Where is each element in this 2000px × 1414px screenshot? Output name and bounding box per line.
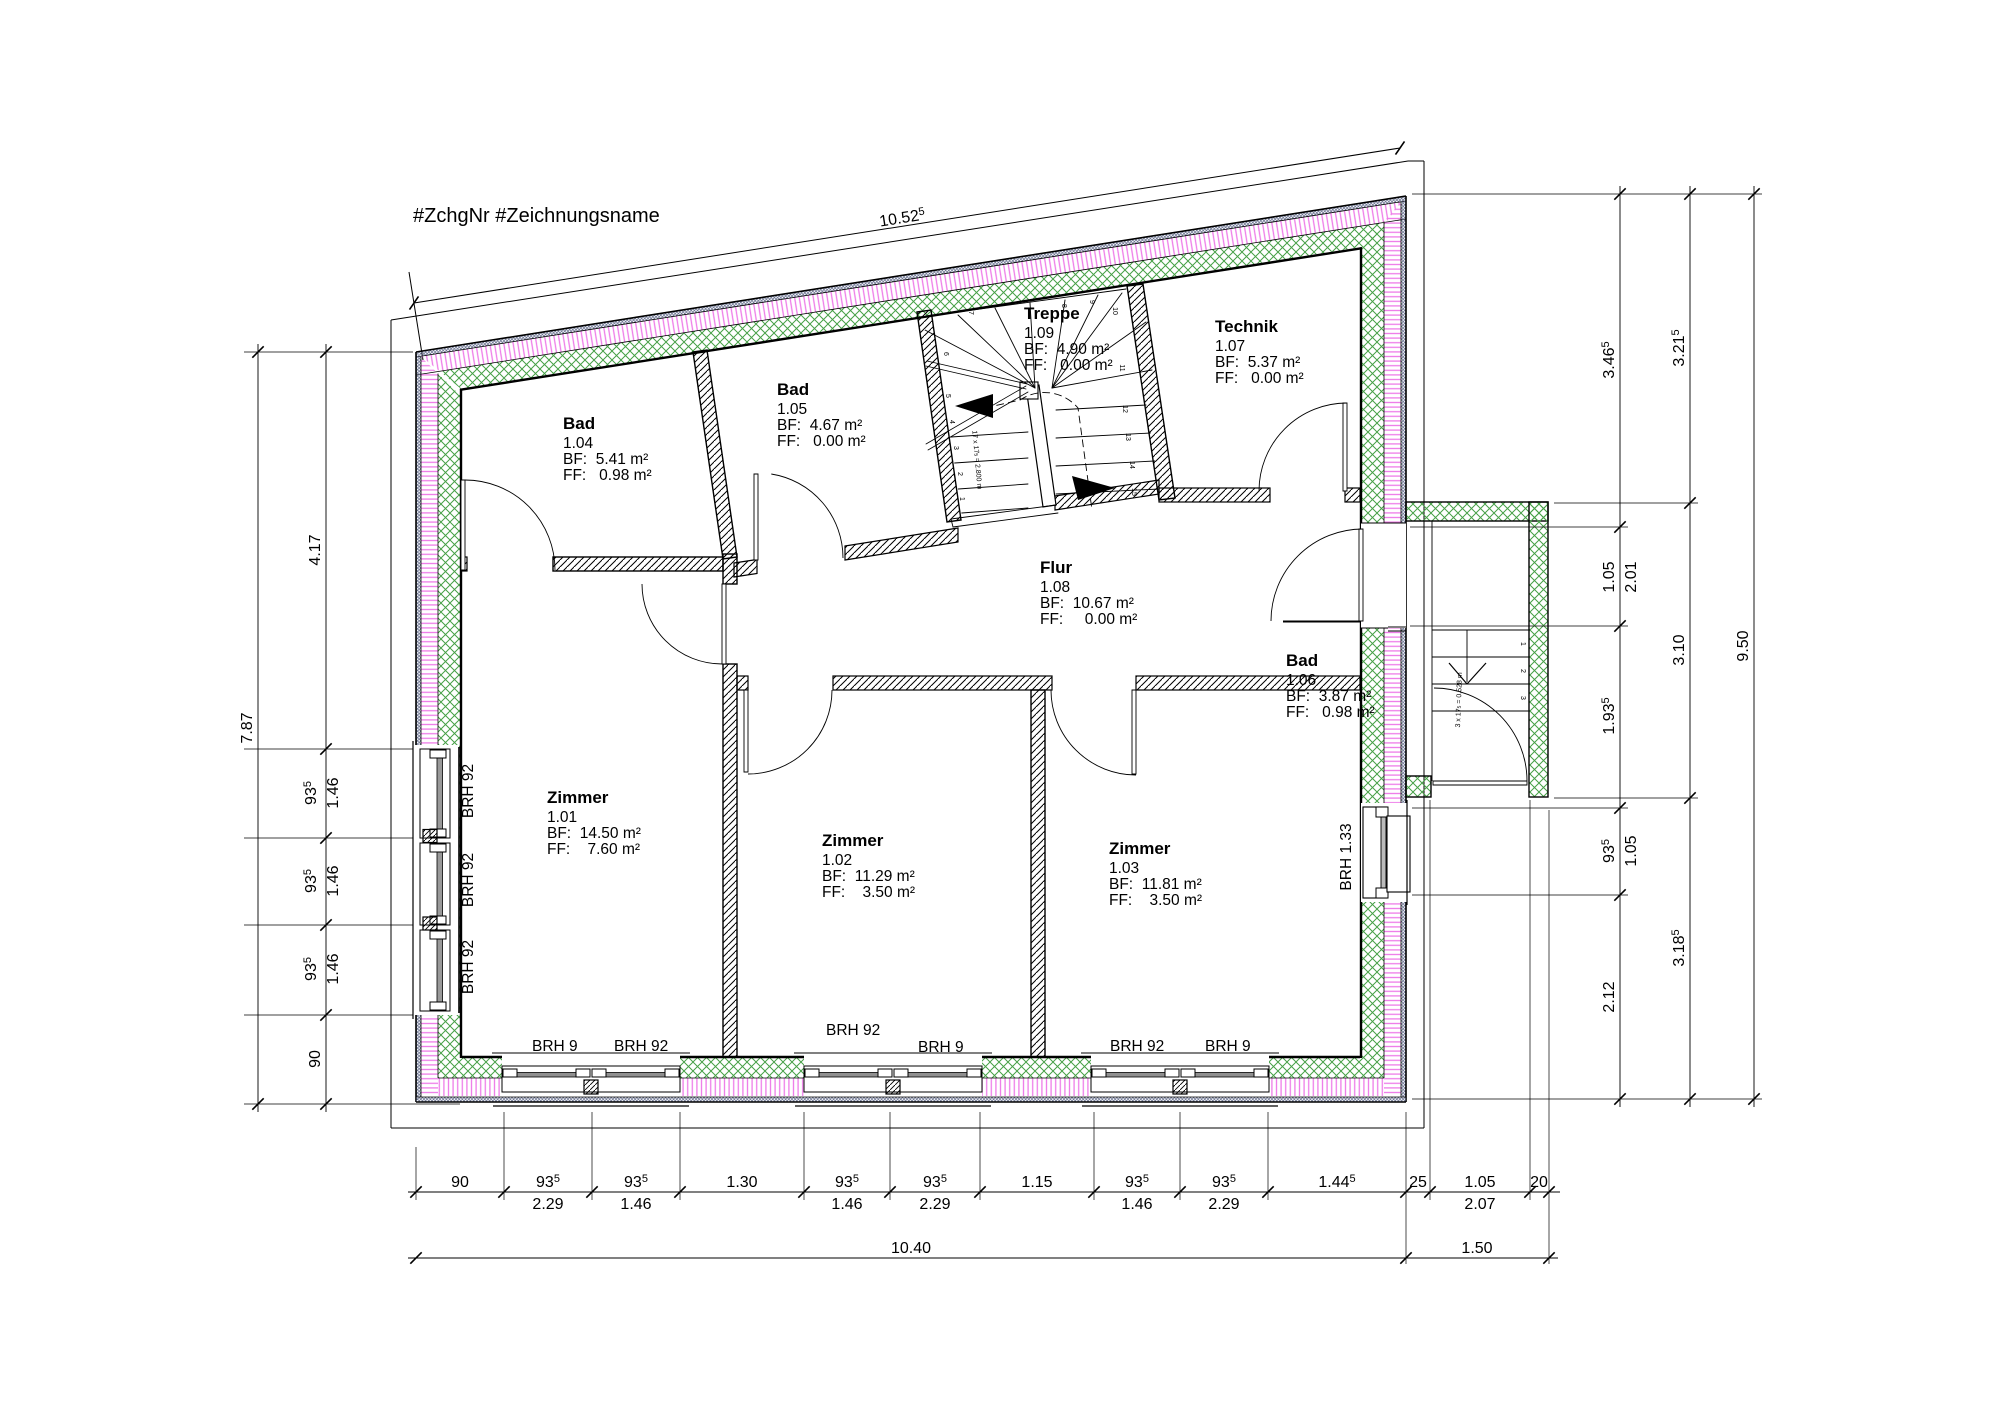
svg-text:FF: 0.98 m²: FF: 0.98 m² xyxy=(563,467,652,484)
svg-text:2.12: 2.12 xyxy=(1601,981,1618,1012)
svg-text:25: 25 xyxy=(1409,1174,1427,1191)
svg-text:BRH 1.33: BRH 1.33 xyxy=(1338,823,1355,890)
svg-text:15: 15 xyxy=(1130,488,1137,496)
svg-text:2: 2 xyxy=(956,472,963,476)
svg-text:2.01: 2.01 xyxy=(1623,561,1640,592)
svg-text:Technik: Technik xyxy=(1215,317,1279,336)
svg-text:12: 12 xyxy=(1121,405,1128,413)
svg-text:2.29: 2.29 xyxy=(1208,1196,1239,1213)
svg-text:6: 6 xyxy=(942,352,949,356)
svg-text:1.01: 1.01 xyxy=(547,809,577,826)
svg-text:BRH 92: BRH 92 xyxy=(826,1022,880,1039)
svg-text:3: 3 xyxy=(952,446,959,450)
svg-text:BF: 10.67 m²: BF: 10.67 m² xyxy=(1040,595,1134,612)
svg-text:FF: 3.50 m²: FF: 3.50 m² xyxy=(822,884,915,901)
svg-text:1.46: 1.46 xyxy=(831,1196,862,1213)
svg-text:BF: 5.37 m²: BF: 5.37 m² xyxy=(1215,354,1300,371)
svg-text:11: 11 xyxy=(1118,364,1125,371)
svg-text:7: 7 xyxy=(967,311,974,315)
svg-text:1: 1 xyxy=(958,497,965,501)
svg-text:1.46: 1.46 xyxy=(325,865,342,896)
svg-text:Zimmer: Zimmer xyxy=(1109,839,1171,858)
svg-text:1.46: 1.46 xyxy=(325,953,342,984)
svg-text:FF: 0.00 m²: FF: 0.00 m² xyxy=(1024,357,1113,374)
svg-text:90: 90 xyxy=(451,1174,469,1191)
svg-text:4.17: 4.17 xyxy=(307,534,324,565)
svg-text:BF: 3.87 m²: BF: 3.87 m² xyxy=(1286,688,1371,705)
svg-text:1.04: 1.04 xyxy=(563,435,594,452)
svg-text:Bad: Bad xyxy=(1286,651,1318,670)
svg-text:1.05: 1.05 xyxy=(1601,561,1618,592)
svg-text:9.50: 9.50 xyxy=(1735,630,1752,661)
svg-text:3: 3 xyxy=(1519,696,1526,700)
svg-text:BRH 92: BRH 92 xyxy=(460,853,477,907)
svg-text:1.46: 1.46 xyxy=(325,777,342,808)
svg-text:BF: 4.90 m²: BF: 4.90 m² xyxy=(1024,341,1109,358)
svg-text:BRH 92: BRH 92 xyxy=(460,940,477,994)
svg-text:Bad: Bad xyxy=(777,380,809,399)
svg-text:1: 1 xyxy=(1519,642,1526,646)
svg-text:FF: 3.50 m²: FF: 3.50 m² xyxy=(1109,892,1202,909)
svg-text:FF: 0.98 m²: FF: 0.98 m² xyxy=(1286,704,1375,721)
svg-text:BRH 9: BRH 9 xyxy=(918,1039,964,1056)
svg-text:1.50: 1.50 xyxy=(1461,1240,1492,1257)
svg-text:5: 5 xyxy=(944,394,951,398)
svg-text:Treppe: Treppe xyxy=(1024,304,1080,323)
svg-text:BRH 92: BRH 92 xyxy=(460,764,477,818)
svg-text:2: 2 xyxy=(1519,669,1526,673)
svg-text:1.03: 1.03 xyxy=(1109,860,1139,877)
svg-text:BF: 11.29 m²: BF: 11.29 m² xyxy=(822,868,915,885)
svg-text:10.40: 10.40 xyxy=(891,1240,931,1257)
svg-text:Zimmer: Zimmer xyxy=(822,831,884,850)
svg-text:7.87: 7.87 xyxy=(239,712,256,743)
svg-text:FF: 0.00 m²: FF: 0.00 m² xyxy=(1040,611,1137,628)
svg-text:20: 20 xyxy=(1530,1174,1548,1191)
svg-text:1.07: 1.07 xyxy=(1215,338,1245,355)
svg-text:BF: 5.41 m²: BF: 5.41 m² xyxy=(563,451,648,468)
svg-text:10: 10 xyxy=(1111,307,1118,315)
svg-text:1.06: 1.06 xyxy=(1286,672,1316,689)
svg-text:BRH 92: BRH 92 xyxy=(614,1038,668,1055)
svg-text:2.29: 2.29 xyxy=(919,1196,950,1213)
svg-text:1.05: 1.05 xyxy=(1623,835,1640,866)
svg-text:2.29: 2.29 xyxy=(532,1196,563,1213)
svg-text:FF: 7.60 m²: FF: 7.60 m² xyxy=(547,841,640,858)
svg-text:1.08: 1.08 xyxy=(1040,579,1070,596)
svg-text:1.46: 1.46 xyxy=(1121,1196,1152,1213)
svg-text:BRH 92: BRH 92 xyxy=(1110,1038,1164,1055)
svg-text:1.46: 1.46 xyxy=(620,1196,651,1213)
svg-text:1.09: 1.09 xyxy=(1024,325,1054,342)
svg-text:#ZchgNr #Zeichnungsname: #ZchgNr #Zeichnungsname xyxy=(413,205,660,227)
svg-text:BRH 9: BRH 9 xyxy=(1205,1038,1251,1055)
svg-text:Flur: Flur xyxy=(1040,558,1072,577)
svg-text:BF: 11.81 m²: BF: 11.81 m² xyxy=(1109,876,1202,893)
svg-text:14: 14 xyxy=(1128,461,1135,469)
svg-text:Bad: Bad xyxy=(563,414,595,433)
svg-text:FF: 0.00 m²: FF: 0.00 m² xyxy=(777,433,866,450)
svg-text:Zimmer: Zimmer xyxy=(547,788,609,807)
svg-text:FF: 0.00 m²: FF: 0.00 m² xyxy=(1215,370,1304,387)
svg-text:3.10: 3.10 xyxy=(1671,634,1688,665)
svg-text:9: 9 xyxy=(1088,300,1095,304)
svg-text:BF: 14.50 m²: BF: 14.50 m² xyxy=(547,825,641,842)
svg-text:4: 4 xyxy=(948,420,955,424)
svg-text:2.07: 2.07 xyxy=(1464,1196,1495,1213)
svg-text:BRH 9: BRH 9 xyxy=(532,1038,578,1055)
svg-text:BF: 4.67 m²: BF: 4.67 m² xyxy=(777,417,862,434)
svg-text:1.30: 1.30 xyxy=(726,1174,757,1191)
svg-text:1.15: 1.15 xyxy=(1021,1174,1052,1191)
svg-text:13: 13 xyxy=(1124,433,1131,441)
svg-text:90: 90 xyxy=(307,1050,324,1068)
svg-text:1.05: 1.05 xyxy=(777,401,807,418)
svg-text:1.02: 1.02 xyxy=(822,852,852,869)
svg-text:1.05: 1.05 xyxy=(1464,1174,1495,1191)
